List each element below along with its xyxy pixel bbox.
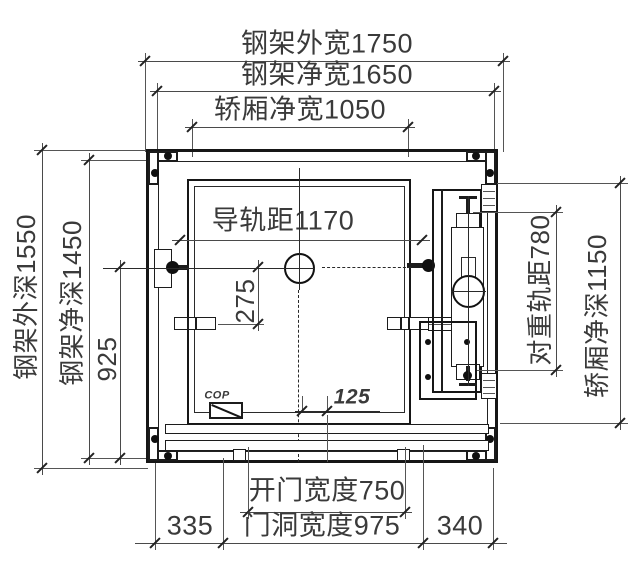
bolt-dot [425,374,431,380]
dim-line-car-clear-depth [620,176,621,430]
bolt-dot [151,169,159,177]
corner-angle [148,427,159,461]
label-cop: COP [204,391,229,402]
bolt-dot [486,169,494,177]
dim-line-frame-clear-width [150,91,501,92]
dim-line-125 [295,411,380,413]
bracket-hatch [400,318,402,329]
dim-line-frame-outer-depth [42,143,43,475]
extension-line [503,53,504,152]
bracket-hatch [187,318,189,329]
label-275: 275 [232,279,258,324]
bolt-dot [464,339,470,345]
label-cw-rail-distance: 对重轨距780 [527,215,553,366]
door-centerline [327,415,328,462]
cw-centerline [468,196,469,386]
label-door-opening-width: 开门宽度750 [249,478,406,505]
bracket-hatch [408,318,410,329]
dim-line-frame-clear-depth [89,153,90,465]
bolt-dot [164,452,172,460]
bracket-hatch [483,393,495,394]
bolt-dot [425,339,431,345]
cw-rail-bracket-bottom [481,373,497,399]
label-frame-clear-width: 钢架净宽1650 [241,62,413,89]
bracket-hatch [483,380,495,381]
extension-line [477,370,563,371]
extension-line [497,183,628,184]
extension-line [34,150,148,151]
horizontal-centerline [103,268,315,269]
horizontal-centerline-dashed [322,267,411,268]
vertical-centerline [299,168,300,290]
label-door-hole-width: 门洞宽度975 [244,513,401,540]
extension-line [81,458,148,459]
label-frame-outer-depth: 钢架外深1550 [13,214,39,380]
extension-line [494,83,495,154]
dim-line-bottom-chain [135,543,507,544]
bracket-hatch [483,198,495,199]
extension-line [155,463,156,550]
label-car-clear-width: 轿厢净宽1050 [214,97,386,124]
bolt-dot [472,152,480,160]
label-frame-outer-width: 钢架外宽1750 [241,31,413,58]
sill-clip [233,449,246,461]
bracket-hatch [483,387,495,388]
sill-clip [397,449,410,461]
label-car-clear-depth: 轿厢净深1150 [584,234,610,398]
label-frame-clear-depth: 钢架净深1450 [59,220,85,386]
bracket-hatch [483,191,495,192]
extension-line [500,423,628,424]
extension-line [223,458,224,550]
extension-line [145,53,146,152]
bolt-dot [151,435,159,443]
extension-line [34,468,148,469]
dim-line-cw-rail-distance [556,205,557,377]
elevator-plan-drawing: 钢架外宽1750 钢架净宽1650 轿厢净宽1050 钢架外深1550 钢架净深… [0,0,640,576]
label-125: 125 [334,387,371,408]
bolt-dot [472,452,480,460]
dim-line-car-clear-width [185,127,415,128]
label-335: 335 [167,513,214,540]
bracket-hatch [195,318,197,329]
extension-line [157,83,158,154]
bolt-dot [164,152,172,160]
label-925: 925 [94,337,120,382]
corner-angle [485,151,496,185]
bracket-hatch [483,205,495,206]
dim-line-guide-rail [172,240,430,241]
corner-angle [148,151,159,185]
extension-line [423,445,424,550]
vertical-centerline-dashed [298,290,299,462]
label-340: 340 [437,513,484,540]
label-guide-rail-distance: 导轨距1170 [212,208,355,235]
extension-line [493,468,494,550]
extension-line [473,212,563,213]
